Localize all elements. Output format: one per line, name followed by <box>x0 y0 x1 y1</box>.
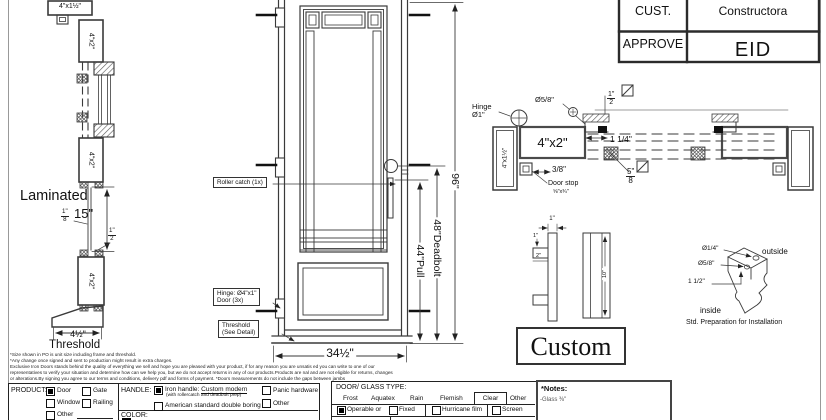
product-gate-label: Gate <box>93 387 107 394</box>
product-other-label: Other <box>57 411 73 418</box>
cust-label: CUST. <box>619 4 687 18</box>
operable-label: Operable or <box>347 406 381 413</box>
product-handle-divider <box>118 383 119 420</box>
panel-height-dim: 15" <box>74 206 93 221</box>
door-stop-size: ⅝"x¾" <box>553 189 569 195</box>
glass-frost-option[interactable]: Frost <box>343 395 358 402</box>
screen-label: Screen <box>502 406 523 413</box>
top-rail-label: 4"x2" <box>88 33 95 49</box>
notes-label: *Notes: <box>541 384 567 393</box>
handle-other-label: Other <box>273 400 289 407</box>
threshold-width-dim: 4½" <box>70 329 86 339</box>
threshold-note: Threshold (See Detail) <box>218 320 259 338</box>
door-elevation-drawing <box>257 0 463 362</box>
cust-value: Constructora <box>687 4 819 18</box>
fixed-label: Fixed <box>399 406 415 413</box>
product-door-checkbox[interactable] <box>46 387 55 396</box>
prep-hole-small-dim: Ø1/4" <box>702 245 718 252</box>
door-height-dim: 96" <box>449 171 461 190</box>
handle-length-dim: 10" <box>602 268 608 280</box>
glass-flemish-option[interactable]: Flemish <box>440 395 463 402</box>
handle-panic-checkbox[interactable] <box>262 386 271 395</box>
vertical-section-drawing <box>48 1 114 339</box>
prep-detail-drawing <box>712 248 767 313</box>
product-window-checkbox[interactable] <box>46 399 55 408</box>
glass-cell-divider-2 <box>487 404 488 416</box>
glass-aquatex-option[interactable]: Aquatex <box>371 395 395 402</box>
offset-dim: 1" 2 <box>108 228 116 242</box>
product-other-checkbox[interactable] <box>46 411 55 420</box>
hurricane-checkbox[interactable] <box>432 406 441 415</box>
approve-label: APPROVE <box>619 37 687 51</box>
door-stop-callout: Door stop <box>548 180 578 188</box>
approve-value: EID <box>687 39 819 62</box>
prep-hole-large-dim: Ø5/8" <box>698 260 714 267</box>
product-railing-checkbox[interactable] <box>82 399 91 408</box>
inside-label: inside <box>700 306 721 315</box>
hinge-note: Hinge: Ø4"x1" Door (3x) <box>213 288 260 306</box>
glass-cell-divider-1 <box>425 404 426 416</box>
laminated-label: Laminated <box>20 188 88 204</box>
glass-partial-divider <box>390 416 391 420</box>
fine-print-line-5: or alterations.By signing you agree to o… <box>10 376 345 382</box>
hurricane-label: Hurricane film <box>442 406 482 413</box>
stile-dim: 1 1/4" <box>610 134 632 144</box>
mid-rail-label: 4"x2" <box>88 152 95 168</box>
product-door-label: Door <box>57 387 71 394</box>
handle-american-label: American standard double boring <box>165 402 261 409</box>
plan-side-jamb-label: 4"x1½" <box>502 148 509 169</box>
handle-iron-sublabel: (with rollercatch and deadbolt prep) <box>166 393 241 398</box>
product-other-line[interactable] <box>77 418 113 419</box>
operable-checkbox[interactable] <box>337 406 346 415</box>
outside-label: outside <box>762 247 788 256</box>
product-label: PRODUCT: <box>11 387 47 395</box>
glass-type-label: DOOR/ GLASS TYPE: <box>336 384 406 392</box>
stop-offset-dim: 3/8" <box>552 165 566 174</box>
pin-dia-dim: Ø5/8" <box>535 96 554 104</box>
product-railing-label: Railing <box>93 399 113 406</box>
panel-thickness-dim: 1" 8 <box>61 209 69 223</box>
door-width-dim: 34½" <box>324 346 356 360</box>
screen-checkbox[interactable] <box>492 406 501 415</box>
plan-head-jamb-label: 4"x2" <box>520 135 585 150</box>
shop-drawing-page: CUST. Constructora APPROVE EID 4"x1½" 4"… <box>0 0 826 420</box>
head-jamb-label: 4"x1½" <box>48 3 92 10</box>
handle-label: HANDLE: <box>121 387 151 395</box>
handle-style-name: Custom <box>517 332 625 362</box>
handle-width-dim: 1" <box>549 216 554 222</box>
glass-clear-option-selected[interactable]: Clear <box>474 392 507 405</box>
glass-rain-option[interactable]: Rain <box>410 395 423 402</box>
handle-american-checkbox[interactable] <box>154 402 163 411</box>
glass-thickness-dim: 5" 8 <box>626 168 635 186</box>
handle-other-checkbox[interactable] <box>262 399 271 408</box>
notes-glass-note: -Glass ⅜" <box>540 397 566 403</box>
product-gate-checkbox[interactable] <box>82 387 91 396</box>
glass-bottom-divider <box>331 416 535 417</box>
product-window-label: Window <box>57 399 80 406</box>
threshold-label: Threshold <box>49 339 100 351</box>
handle-stem-dim-1: 1" <box>533 233 538 239</box>
fixed-checkbox[interactable] <box>389 406 398 415</box>
pull-height-dim: 44"Pull <box>414 243 426 280</box>
handle-stem-dim-2: 2" <box>536 253 541 259</box>
handle-panic-label: Panic hardware <box>273 387 318 394</box>
handle-iron-checkbox[interactable] <box>154 386 163 395</box>
glass-other-option[interactable]: Other <box>510 395 526 402</box>
handle-iron-label: Iron handle: Custom modern <box>165 386 247 393</box>
prep-caption: Std. Preparation for Installation <box>686 319 782 326</box>
color-row-divider <box>118 410 318 411</box>
prep-spacing-dim: 1 1/2" <box>688 278 705 285</box>
bottom-rail-label: 4"x2" <box>88 273 95 289</box>
roller-catch-note: Roller catch (1x) <box>213 177 267 188</box>
hinge-callout: Hinge Ø1" <box>472 103 492 119</box>
gap-dim: 1" 2 <box>607 91 615 107</box>
deadbolt-height-dim: 48"Deadbolt <box>431 217 443 278</box>
